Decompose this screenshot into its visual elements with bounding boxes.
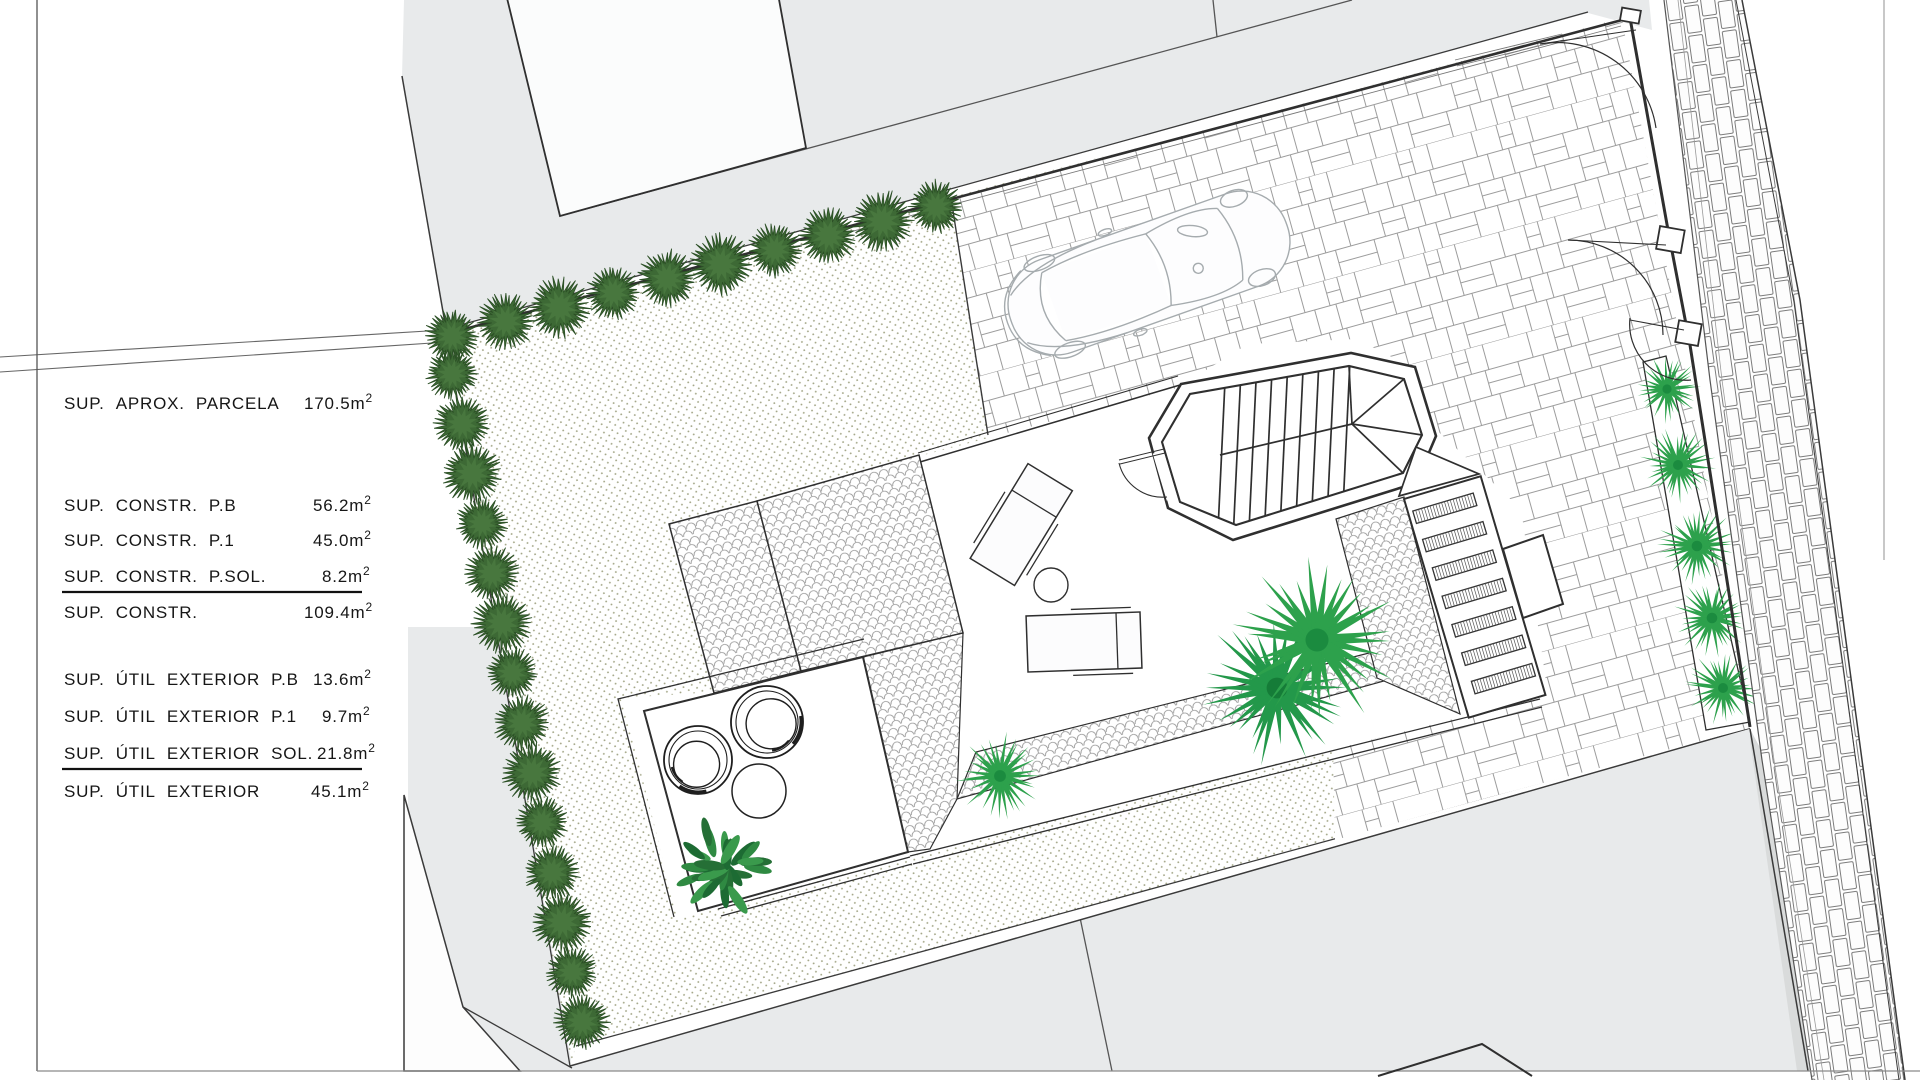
svg-text:109.4m2: 109.4m2: [304, 600, 373, 622]
svg-text:21.8m2: 21.8m2: [317, 741, 376, 763]
svg-text:45.0m2: 45.0m2: [313, 528, 372, 550]
svg-text:SUP. APROX. PARCELA: SUP. APROX. PARCELA: [64, 394, 280, 413]
svg-text:SUP. CONSTR. P.SOL.: SUP. CONSTR. P.SOL.: [64, 567, 266, 586]
svg-text:SUP. ÚTIL EXTERIOR: SUP. ÚTIL EXTERIOR: [64, 782, 260, 801]
svg-text:170.5m2: 170.5m2: [304, 391, 373, 413]
svg-text:SUP. CONSTR. P.1: SUP. CONSTR. P.1: [64, 531, 235, 550]
svg-text:SUP. CONSTR. P.B: SUP. CONSTR. P.B: [64, 496, 237, 515]
svg-text:45.1m2: 45.1m2: [311, 779, 370, 801]
svg-text:SUP. CONSTR.: SUP. CONSTR.: [64, 603, 198, 622]
svg-text:56.2m2: 56.2m2: [313, 493, 372, 515]
svg-text:13.6m2: 13.6m2: [313, 667, 372, 689]
svg-text:SUP. ÚTIL EXTERIOR P.B: SUP. ÚTIL EXTERIOR P.B: [64, 670, 299, 689]
svg-text:SUP. ÚTIL EXTERIOR SOL.: SUP. ÚTIL EXTERIOR SOL.: [64, 744, 313, 763]
svg-text:SUP. ÚTIL EXTERIOR P.1: SUP. ÚTIL EXTERIOR P.1: [64, 707, 297, 726]
